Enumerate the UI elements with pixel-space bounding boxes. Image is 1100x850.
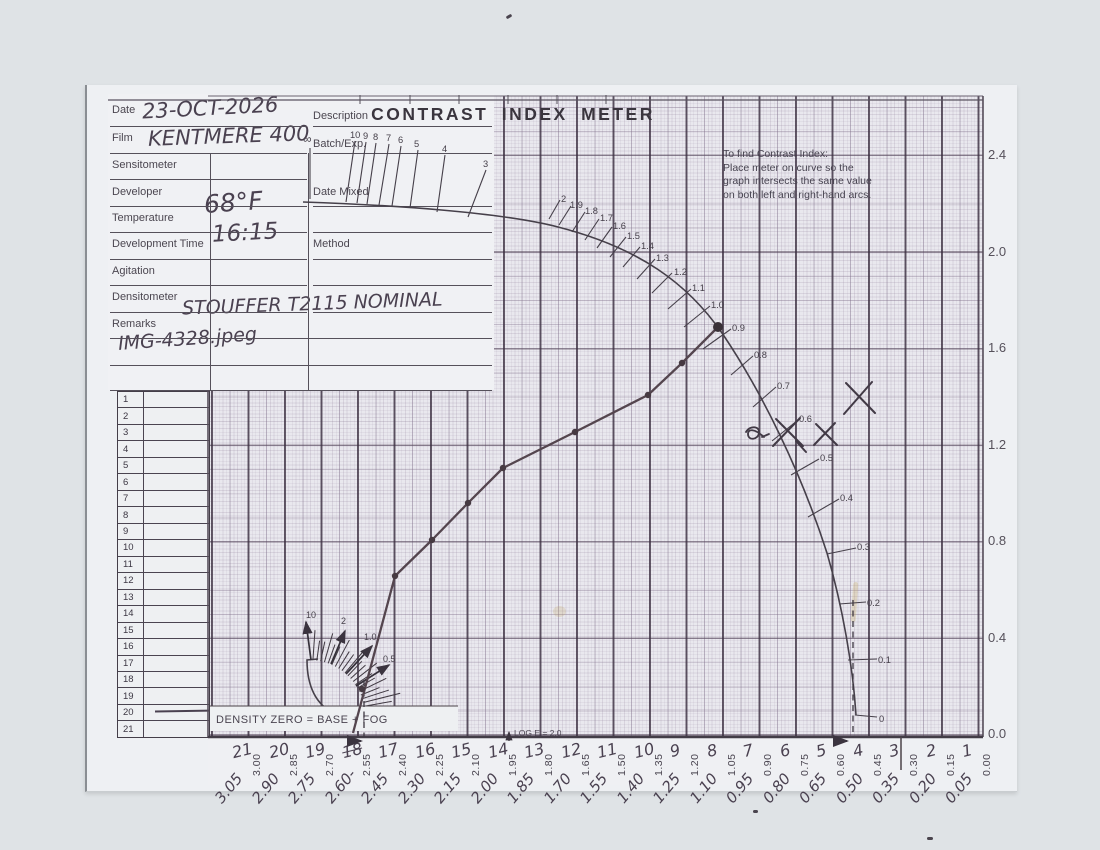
table-row-number: 7 <box>118 491 144 506</box>
bottom-axis-printed-value: 1.95 <box>507 754 519 776</box>
right-axis-label: 1.6 <box>988 340 1006 355</box>
form-label-sensitometer: Sensitometer <box>112 159 177 171</box>
bottom-axis-printed-value: 2.70 <box>324 754 336 776</box>
bottom-axis-printed-value: 1.20 <box>689 754 701 776</box>
paper-stain <box>553 606 566 617</box>
table-row-value <box>144 688 209 703</box>
table-row: 19 <box>118 687 209 703</box>
table-row-value <box>144 639 209 654</box>
bottom-axis-printed-value: 2.10 <box>470 754 482 776</box>
bottom-axis-printed-value: 2.25 <box>434 754 446 776</box>
bottom-axis-printed-value: 2.40 <box>397 754 409 776</box>
bottom-axis-printed-value: 0.00 <box>981 754 993 776</box>
table-row-value <box>144 425 209 440</box>
table-row: 11 <box>118 556 209 572</box>
readings-table: 123456789101112131415161718192021 <box>117 391 210 738</box>
table-row-number: 11 <box>118 557 144 572</box>
bottom-axis-printed-value: 2.85 <box>288 754 300 776</box>
form-rule <box>313 312 492 313</box>
form-label-densitometer: Densitometer <box>112 291 177 303</box>
data-form: DateFilmSensitometerDeveloperTemperature… <box>108 94 494 390</box>
table-row-value <box>144 705 209 720</box>
table-row: 9 <box>118 523 209 539</box>
right-axis-label: 0.0 <box>988 726 1006 741</box>
table-row: 12 <box>118 572 209 588</box>
table-row: 5 <box>118 457 209 473</box>
table-row-value <box>144 623 209 638</box>
table-row: 2 <box>118 407 209 423</box>
instructions-line: To find Contrast Index: <box>723 148 918 162</box>
table-row: 3 <box>118 424 209 440</box>
table-row-value <box>144 458 209 473</box>
table-row-value <box>144 557 209 572</box>
form-label-date-mixed: Date Mixed <box>313 186 369 198</box>
table-row-number: 2 <box>118 408 144 423</box>
instructions-line: on both left and right-hand arcs. <box>723 189 918 203</box>
table-row: 6 <box>118 473 209 489</box>
form-rule <box>110 232 307 233</box>
form-rule <box>110 365 492 366</box>
table-row: 13 <box>118 589 209 605</box>
bottom-axis-printed-value: 2.55 <box>361 754 373 776</box>
right-axis-label: 1.2 <box>988 437 1006 452</box>
sheet-title: CONTRAST INDEX METER <box>368 104 658 125</box>
table-row-number: 1 <box>118 392 144 407</box>
form-rule <box>110 206 307 207</box>
table-row-value <box>144 441 209 456</box>
table-row-number: 5 <box>118 458 144 473</box>
form-label-developer: Developer <box>112 186 162 198</box>
table-row: 10 <box>118 539 209 555</box>
bottom-axis-printed-value: 1.05 <box>726 754 738 776</box>
table-row-value <box>144 507 209 522</box>
table-row: 18 <box>118 671 209 687</box>
form-label-temperature: Temperature <box>112 212 174 224</box>
right-axis-label: 2.4 <box>988 147 1006 162</box>
table-row-number: 21 <box>118 721 144 736</box>
table-row-value <box>144 524 209 539</box>
table-row-value <box>144 672 209 687</box>
table-row-number: 15 <box>118 623 144 638</box>
table-row: 21 <box>118 720 209 736</box>
table-row-number: 13 <box>118 590 144 605</box>
table-row-number: 3 <box>118 425 144 440</box>
form-rule <box>110 285 307 286</box>
bottom-axis-printed-value: 0.15 <box>945 754 957 776</box>
form-label-date: Date <box>112 104 135 116</box>
table-row-number: 10 <box>118 540 144 555</box>
scan-speck <box>506 14 513 20</box>
table-row: 14 <box>118 605 209 621</box>
form-label-remarks: Remarks <box>112 318 156 330</box>
table-row-number: 20 <box>118 705 144 720</box>
table-row: 4 <box>118 440 209 456</box>
scan-speck <box>927 837 933 840</box>
form-label-development-time: Development Time <box>112 238 204 250</box>
table-row-value <box>144 540 209 555</box>
table-row-number: 19 <box>118 688 144 703</box>
bottom-axis-printed-value: 1.50 <box>616 754 628 776</box>
form-divider <box>308 153 309 390</box>
form-label-description: Description <box>313 110 368 122</box>
table-row-number: 18 <box>118 672 144 687</box>
form-rule <box>110 153 307 154</box>
table-row-number: 14 <box>118 606 144 621</box>
bottom-axis-printed-value: 3.00 <box>251 754 263 776</box>
form-rule <box>110 259 307 260</box>
instructions-line: graph intersects the same value <box>723 175 918 189</box>
table-row: 17 <box>118 655 209 671</box>
table-row-number: 9 <box>118 524 144 539</box>
bottom-axis-printed-value: 1.35 <box>653 754 665 776</box>
table-row-number: 17 <box>118 656 144 671</box>
table-row-value <box>144 474 209 489</box>
form-rule <box>313 285 492 286</box>
table-row-number: 8 <box>118 507 144 522</box>
form-rule <box>313 206 492 207</box>
form-label-batch-exp-: Batch/Exp. <box>313 138 366 150</box>
table-row-value <box>144 721 209 736</box>
form-label-agitation: Agitation <box>112 265 155 277</box>
form-rule <box>110 312 307 313</box>
table-row-value <box>144 408 209 423</box>
table-row-value <box>144 606 209 621</box>
table-row-value <box>144 590 209 605</box>
table-row: 7 <box>118 490 209 506</box>
table-row: 16 <box>118 638 209 654</box>
table-row-value <box>144 491 209 506</box>
bottom-axis-printed-value: 1.65 <box>580 754 592 776</box>
handwritten-value: 68°F <box>203 186 264 219</box>
table-row: 15 <box>118 622 209 638</box>
handwritten-value: STOUFFER T2115 NOMINAL <box>182 288 443 319</box>
table-row-value <box>144 392 209 407</box>
table-row-value <box>144 656 209 671</box>
bottom-axis-printed-value: 0.30 <box>908 754 920 776</box>
form-rule <box>110 338 492 339</box>
bottom-axis-printed-value: 0.60 <box>835 754 847 776</box>
instructions-note: To find Contrast Index:Place meter on cu… <box>723 148 918 202</box>
right-axis-label: 0.8 <box>988 533 1006 548</box>
form-divider <box>210 153 211 390</box>
table-row: 8 <box>118 506 209 522</box>
scan-speck <box>753 810 758 813</box>
form-rule <box>313 126 492 127</box>
bottom-axis-printed-value: 0.90 <box>762 754 774 776</box>
right-axis-label: 0.4 <box>988 630 1006 645</box>
form-rule <box>313 259 492 260</box>
form-rule <box>110 126 307 127</box>
form-rule <box>313 232 492 233</box>
table-row-number: 16 <box>118 639 144 654</box>
table-row-value <box>144 573 209 588</box>
instructions-line: Place meter on curve so the <box>723 162 918 176</box>
form-label-film: Film <box>112 132 133 144</box>
scanned-contrast-index-sheet: DateFilmSensitometerDeveloperTemperature… <box>0 0 1100 850</box>
bottom-axis-printed-value: 0.75 <box>799 754 811 776</box>
form-rule <box>110 179 307 180</box>
table-row-number: 6 <box>118 474 144 489</box>
handwritten-value: 23-OCT-2026 <box>141 92 278 123</box>
bottom-axis-printed-value: 1.80 <box>543 754 555 776</box>
right-axis-label: 2.0 <box>988 244 1006 259</box>
bottom-axis-printed-value: 0.45 <box>872 754 884 776</box>
table-row-number: 4 <box>118 441 144 456</box>
table-row: 1 <box>118 392 209 407</box>
table-row-number: 12 <box>118 573 144 588</box>
form-label-method: Method <box>313 238 350 250</box>
form-rule <box>313 153 492 154</box>
